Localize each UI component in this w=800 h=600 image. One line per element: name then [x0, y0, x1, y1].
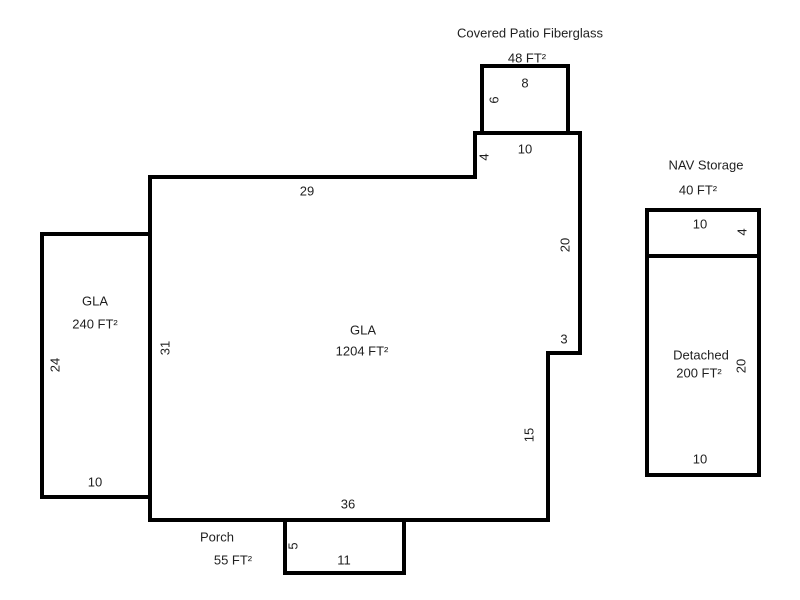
- covered-patio-dim-left: 6: [488, 96, 501, 103]
- nav-storage-dim-top: 10: [693, 218, 707, 231]
- nav-storage-title: NAV Storage: [669, 159, 744, 172]
- porch-area: 55 FT²: [214, 554, 252, 567]
- sketch-lines: [0, 0, 800, 600]
- main-gla-area: 1204 FT²: [336, 345, 389, 358]
- main-gla-dim-step: 3: [560, 333, 567, 346]
- porch-dim-bottom: 11: [337, 554, 351, 567]
- porch-title: Porch: [200, 531, 234, 544]
- main-gla-dim-notch-left: 4: [478, 153, 491, 160]
- covered-patio-area: 48 FT²: [508, 52, 546, 65]
- floor-plan-sketch: Covered Patio Fiberglass 48 FT² 8 6 10 4…: [0, 0, 800, 600]
- porch-dim-left: 5: [287, 542, 300, 549]
- left-gla-dim-bottom: 10: [88, 476, 102, 489]
- left-gla-label: GLA: [82, 295, 108, 308]
- detached-dim-right: 20: [735, 359, 748, 373]
- left-gla-area: 240 FT²: [72, 318, 118, 331]
- detached-label: Detached: [673, 349, 729, 362]
- main-gla-dim-notch-top: 10: [518, 143, 532, 156]
- nav-storage-area: 40 FT²: [679, 184, 717, 197]
- main-gla-dim-right-upper: 20: [559, 238, 572, 252]
- nav-storage-dim-right: 4: [736, 228, 749, 235]
- main-gla-dim-top: 29: [300, 185, 314, 198]
- covered-patio-title: Covered Patio Fiberglass: [457, 27, 603, 40]
- covered-patio-dim-top: 8: [521, 77, 528, 90]
- main-gla-dim-right-lower: 15: [523, 428, 536, 442]
- detached-area: 200 FT²: [676, 367, 722, 380]
- main-gla-label: GLA: [350, 324, 376, 337]
- main-gla-dim-left: 31: [159, 341, 172, 355]
- detached-dim-bottom: 10: [693, 453, 707, 466]
- left-gla-dim-left: 24: [49, 358, 62, 372]
- main-gla-dim-bottom: 36: [341, 498, 355, 511]
